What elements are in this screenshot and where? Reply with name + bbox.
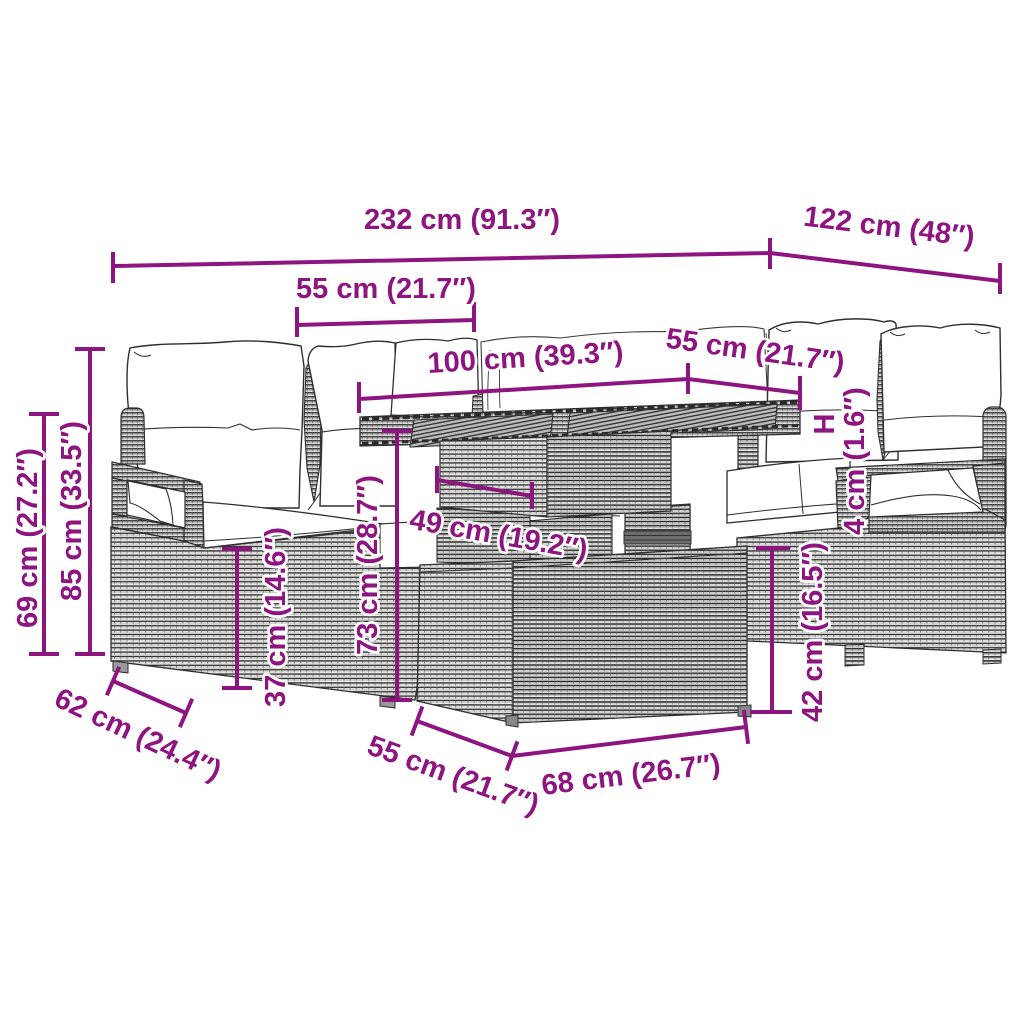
svg-text:85 cm (33.5″): 85 cm (33.5″): [56, 421, 88, 601]
svg-text:122 cm (48″): 122 cm (48″): [802, 201, 977, 254]
svg-text:73 cm (28.7″): 73 cm (28.7″): [352, 475, 384, 655]
svg-text:68 cm (26.7″): 68 cm (26.7″): [540, 748, 722, 802]
svg-text:H: H: [809, 414, 841, 435]
svg-text:232 cm (91.3″): 232 cm (91.3″): [364, 204, 560, 236]
svg-text:4 cm (1.6″): 4 cm (1.6″): [839, 387, 871, 535]
svg-text:42 cm (16.5″): 42 cm (16.5″): [797, 542, 829, 722]
svg-text:55 cm (21.7″): 55 cm (21.7″): [296, 273, 476, 305]
svg-text:69 cm (27.2″): 69 cm (27.2″): [12, 448, 44, 628]
svg-text:37 cm (14.6″): 37 cm (14.6″): [260, 527, 292, 707]
svg-text:62 cm (24.4″): 62 cm (24.4″): [50, 682, 227, 787]
